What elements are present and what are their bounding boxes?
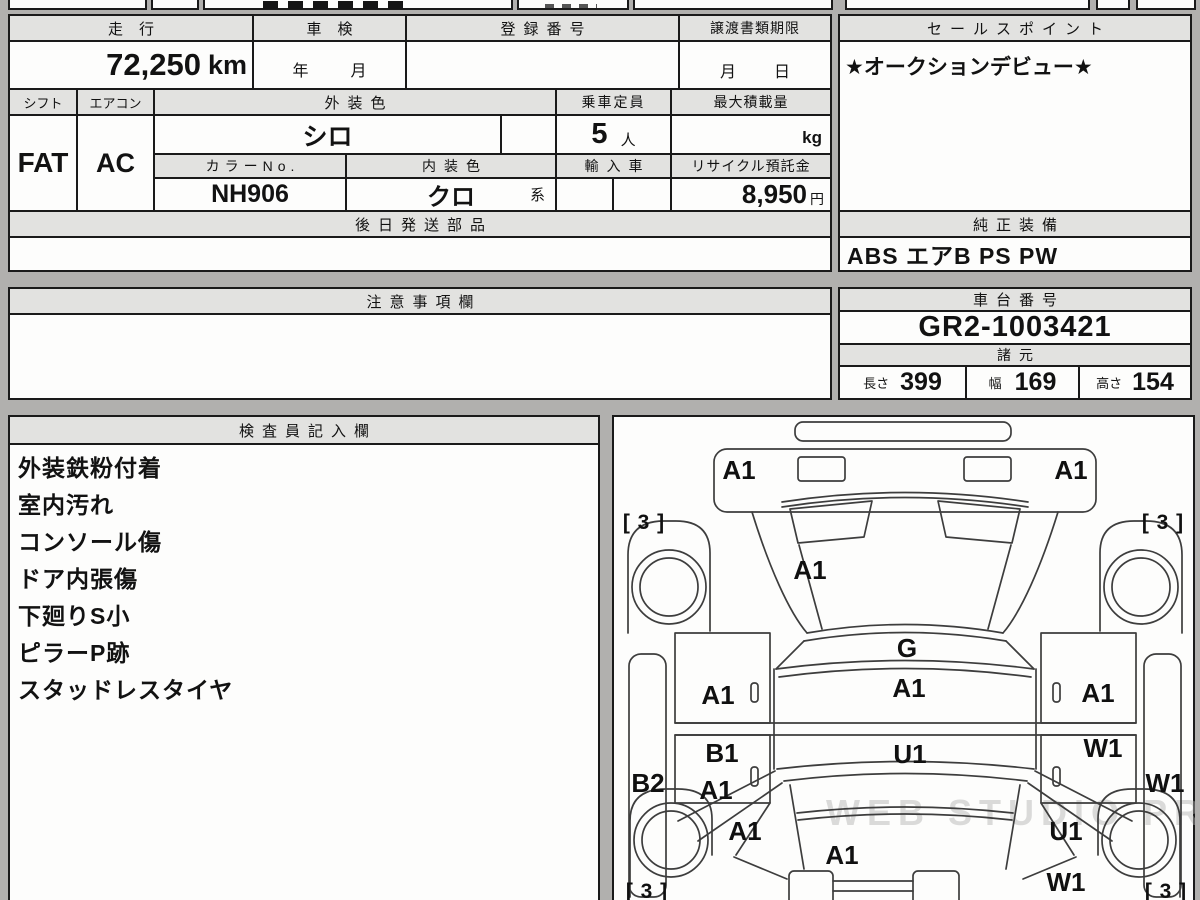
damage-mark: [ 3 ] [1145, 880, 1187, 900]
aircon-value: AC [96, 148, 135, 179]
sales-point-table: セールスポイント ★オークションデビュー★ 純正装備 ABS エアB PS PW [838, 14, 1192, 272]
cutoff-cell [8, 0, 147, 10]
shaken-cell: 年 月 [254, 42, 405, 88]
shift-value: FAT [18, 147, 69, 179]
damage-mark: [ 3 ] [623, 511, 665, 534]
shaken-year-placeholder: 年 [292, 57, 308, 81]
shift-cell: FAT [10, 116, 76, 210]
inspector-note: 下廻りS小 [18, 598, 590, 635]
exterior-color-value: シロ [302, 117, 352, 153]
length-value: 399 [900, 368, 942, 397]
import-cell-1 [557, 179, 612, 210]
transfer-deadline-header: 譲渡書類期限 [680, 16, 830, 40]
import-cell-2 [614, 179, 670, 210]
mileage-header: 走行 [10, 16, 252, 40]
damage-mark: W1 [1047, 867, 1086, 897]
damage-mark: A1 [728, 816, 761, 846]
genuine-equipment-header: 純正装備 [840, 212, 1190, 236]
recycle-deposit-cell: 8,950 円 [672, 179, 830, 210]
max-load-cell: kg [672, 116, 830, 153]
max-load-header: 最大積載量 [672, 90, 830, 114]
color-no-value: NH906 [211, 180, 289, 209]
inspector-notes-cell: 外装鉄粉付着 室内汚れ コンソール傷 ドア内張傷 下廻りS小 ピラーP跡 スタッ… [10, 445, 598, 900]
cutoff-text-fragment [545, 4, 597, 8]
later-shipped-parts-header: 後日発送部品 [10, 212, 830, 236]
damage-mark: [ 3 ] [626, 880, 668, 900]
capacity-unit: 人 [621, 119, 636, 150]
auction-sheet: 走行 車検 登録番号 譲渡書類期限 72,250 km 年 月 月 日 シフト … [0, 0, 1200, 900]
damage-mark: [ 3 ] [1142, 511, 1184, 534]
cutoff-cell [151, 0, 199, 10]
chassis-no-value: GR2-1003421 [918, 312, 1111, 343]
damage-mark: U1 [893, 739, 926, 769]
chassis-table: 車台番号 GR2-1003421 諸元 長さ 399 幅 169 高さ 154 [838, 287, 1192, 400]
cutoff-text-fragment [263, 1, 403, 9]
length-label: 長さ [863, 373, 889, 392]
sales-point-header: セールスポイント [840, 16, 1190, 40]
damage-mark: A1 [793, 555, 826, 585]
capacity-cell: 5 人 [557, 116, 670, 153]
recycle-deposit-unit: 円 [810, 181, 824, 209]
height-cell: 高さ 154 [1080, 367, 1190, 398]
shaken-month-placeholder: 月 [351, 57, 367, 81]
interior-color-suffix: 系 [530, 184, 545, 205]
damage-mark: G [897, 633, 917, 663]
sales-point-cell: ★オークションデビュー★ [840, 42, 1190, 210]
damage-mark: U1 [1049, 816, 1082, 846]
cutoff-cell [1136, 0, 1196, 10]
door-handle-icon [751, 683, 758, 702]
registration-no-cell [407, 42, 678, 88]
car-top-view: A1A1[ 3 ][ 3 ]A1GA1A1A1B1U1W1B2A1W1A1U1A… [614, 417, 1193, 900]
dimensions-header: 諸元 [840, 345, 1190, 365]
caution-notes-header: 注意事項欄 [10, 289, 830, 313]
capacity-value: 5 [591, 118, 607, 151]
damage-mark: A1 [892, 673, 925, 703]
damage-mark: A1 [701, 680, 734, 710]
damage-mark: B1 [705, 738, 738, 768]
exterior-color-cell: シロ [155, 116, 500, 153]
mileage-unit: km [208, 50, 247, 81]
transfer-deadline-cell: 月 日 [680, 42, 830, 88]
length-cell: 長さ 399 [840, 367, 965, 398]
cutoff-cell [633, 0, 833, 10]
later-shipped-parts-cell [10, 238, 830, 270]
shift-header: シフト [10, 90, 76, 114]
interior-color-value: クロ [427, 179, 475, 210]
cutoff-cell [1096, 0, 1130, 10]
damage-mark: W1 [1084, 733, 1123, 763]
damage-mark: W1 [1146, 768, 1185, 798]
damage-mark: B2 [631, 768, 664, 798]
exterior-color-sub-cell [502, 116, 555, 153]
damage-mark: A1 [699, 775, 732, 805]
inspector-note: ピラーP跡 [18, 635, 590, 672]
caution-notes-cell [10, 315, 830, 398]
shaken-header: 車検 [254, 16, 405, 40]
damage-mark: A1 [1054, 455, 1087, 485]
chassis-no-cell: GR2-1003421 [840, 312, 1190, 343]
mileage-value: 72,250 [106, 47, 201, 83]
height-value: 154 [1132, 368, 1174, 397]
color-no-header: カラーNo. [155, 155, 345, 177]
inspector-header: 検査員記入欄 [10, 417, 598, 443]
import-header: 輸入車 [557, 155, 670, 177]
transfer-day-placeholder: 日 [774, 58, 790, 82]
height-label: 高さ [1096, 373, 1122, 392]
damage-mark: A1 [722, 455, 755, 485]
aircon-header: エアコン [78, 90, 153, 114]
width-value: 169 [1015, 368, 1057, 397]
recycle-deposit-value: 8,950 [742, 179, 807, 210]
cutoff-cell [845, 0, 1090, 10]
door-handle-icon [1053, 683, 1060, 702]
caution-notes-table: 注意事項欄 [8, 287, 832, 400]
width-label: 幅 [989, 373, 1002, 392]
width-cell: 幅 169 [967, 367, 1078, 398]
interior-color-header: 内装色 [347, 155, 555, 177]
damage-mark: A1 [1081, 678, 1114, 708]
aircon-cell: AC [78, 116, 153, 210]
interior-color-cell: クロ 系 [347, 179, 555, 210]
capacity-header: 乗車定員 [557, 90, 670, 114]
genuine-equipment-cell: ABS エアB PS PW [840, 238, 1190, 270]
chassis-no-header: 車台番号 [840, 289, 1190, 310]
max-load-unit: kg [802, 128, 822, 148]
inspector-note: 外装鉄粉付着 [18, 450, 590, 487]
recycle-deposit-header: リサイクル預託金 [672, 155, 830, 177]
transfer-month-placeholder: 月 [720, 58, 736, 82]
inspector-note: スタッドレスタイヤ [18, 672, 590, 709]
registration-no-header: 登録番号 [407, 16, 678, 40]
inspector-note: 室内汚れ [18, 487, 590, 524]
exterior-color-header: 外装色 [155, 90, 555, 114]
vehicle-info-table: 走行 車検 登録番号 譲渡書類期限 72,250 km 年 月 月 日 シフト … [8, 14, 832, 272]
inspector-note: ドア内張傷 [18, 561, 590, 598]
inspector-note: コンソール傷 [18, 524, 590, 561]
inspector-table: 検査員記入欄 外装鉄粉付着 室内汚れ コンソール傷 ドア内張傷 下廻りS小 ピラ… [8, 415, 600, 900]
color-no-cell: NH906 [155, 179, 345, 210]
damage-diagram: WEB STUDIO PRO [612, 415, 1195, 900]
mileage-cell: 72,250 km [10, 42, 252, 88]
damage-mark: A1 [825, 840, 858, 870]
